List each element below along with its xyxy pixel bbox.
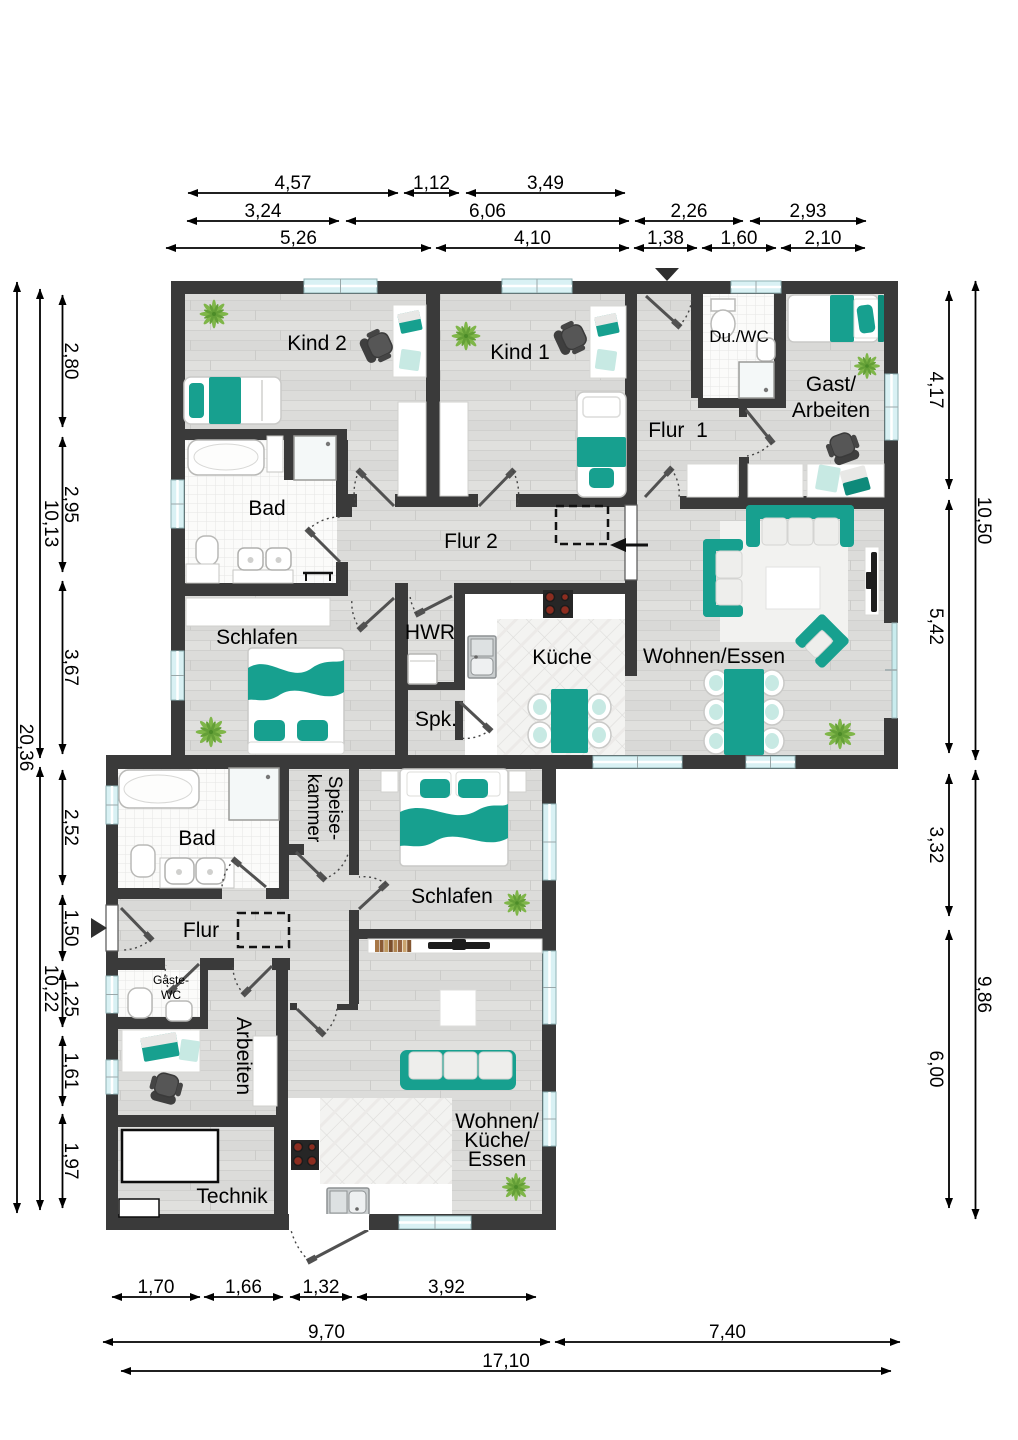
svg-text:9,70: 9,70 xyxy=(308,1322,345,1343)
svg-text:Speise-: Speise- xyxy=(324,776,345,840)
svg-text:2,52: 2,52 xyxy=(60,809,81,846)
svg-text:1,97: 1,97 xyxy=(60,1143,81,1180)
svg-text:WC: WC xyxy=(161,988,181,1002)
svg-text:Du./WC: Du./WC xyxy=(709,327,769,346)
svg-text:1,38: 1,38 xyxy=(647,228,684,249)
svg-text:Kind 1: Kind 1 xyxy=(490,341,550,364)
svg-text:kammer: kammer xyxy=(303,774,324,843)
svg-text:Kind 2: Kind 2 xyxy=(287,332,347,355)
svg-text:Flur 1: Flur 1 xyxy=(648,419,708,442)
svg-text:20,36: 20,36 xyxy=(15,724,36,772)
svg-text:HWR: HWR xyxy=(405,621,455,644)
svg-text:6,06: 6,06 xyxy=(469,201,506,222)
svg-text:9,86: 9,86 xyxy=(973,976,994,1013)
svg-text:1,61: 1,61 xyxy=(60,1053,81,1090)
svg-text:1,66: 1,66 xyxy=(225,1277,262,1298)
svg-text:Bad: Bad xyxy=(178,827,215,850)
svg-text:1,50: 1,50 xyxy=(60,910,81,947)
svg-text:Schlafen: Schlafen xyxy=(411,885,493,908)
svg-text:3,24: 3,24 xyxy=(245,201,282,222)
svg-text:Spk.: Spk. xyxy=(415,708,457,731)
svg-text:1,12: 1,12 xyxy=(413,173,450,194)
svg-text:Flur: Flur xyxy=(183,919,219,942)
svg-text:6,00: 6,00 xyxy=(925,1051,946,1088)
svg-text:3,32: 3,32 xyxy=(925,827,946,864)
svg-text:10,22: 10,22 xyxy=(40,965,61,1013)
svg-text:Bad: Bad xyxy=(248,497,285,520)
svg-text:4,10: 4,10 xyxy=(514,228,551,249)
svg-text:Essen: Essen xyxy=(468,1148,526,1171)
svg-text:2,10: 2,10 xyxy=(805,228,842,249)
svg-text:Arbeiten: Arbeiten xyxy=(232,1017,255,1095)
svg-text:Flur 2: Flur 2 xyxy=(444,530,498,553)
svg-text:10,13: 10,13 xyxy=(40,500,61,548)
svg-text:4,17: 4,17 xyxy=(925,372,946,409)
svg-text:7,40: 7,40 xyxy=(709,1322,746,1343)
svg-text:Wohnen/Essen: Wohnen/Essen xyxy=(643,645,785,668)
svg-text:5,42: 5,42 xyxy=(925,608,946,645)
svg-text:3,67: 3,67 xyxy=(60,649,81,686)
svg-text:2,95: 2,95 xyxy=(60,486,81,523)
svg-text:Gast/: Gast/ xyxy=(806,373,856,396)
svg-text:2,26: 2,26 xyxy=(671,201,708,222)
svg-text:5,26: 5,26 xyxy=(280,228,317,249)
svg-text:17,10: 17,10 xyxy=(482,1351,530,1372)
svg-text:1,60: 1,60 xyxy=(721,228,758,249)
svg-text:Technik: Technik xyxy=(196,1185,268,1208)
svg-text:3,49: 3,49 xyxy=(527,173,564,194)
svg-text:4,57: 4,57 xyxy=(275,173,312,194)
svg-text:1,32: 1,32 xyxy=(303,1277,340,1298)
svg-text:Küche: Küche xyxy=(532,646,592,669)
svg-text:1,25: 1,25 xyxy=(60,980,81,1017)
svg-text:Gäste-: Gäste- xyxy=(153,973,189,987)
svg-text:1,70: 1,70 xyxy=(138,1277,175,1298)
svg-text:2,80: 2,80 xyxy=(60,343,81,380)
svg-text:3,92: 3,92 xyxy=(428,1277,465,1298)
svg-text:10,50: 10,50 xyxy=(973,497,994,545)
svg-text:2,93: 2,93 xyxy=(790,201,827,222)
svg-text:Arbeiten: Arbeiten xyxy=(792,399,870,422)
svg-text:Schlafen: Schlafen xyxy=(216,626,298,649)
